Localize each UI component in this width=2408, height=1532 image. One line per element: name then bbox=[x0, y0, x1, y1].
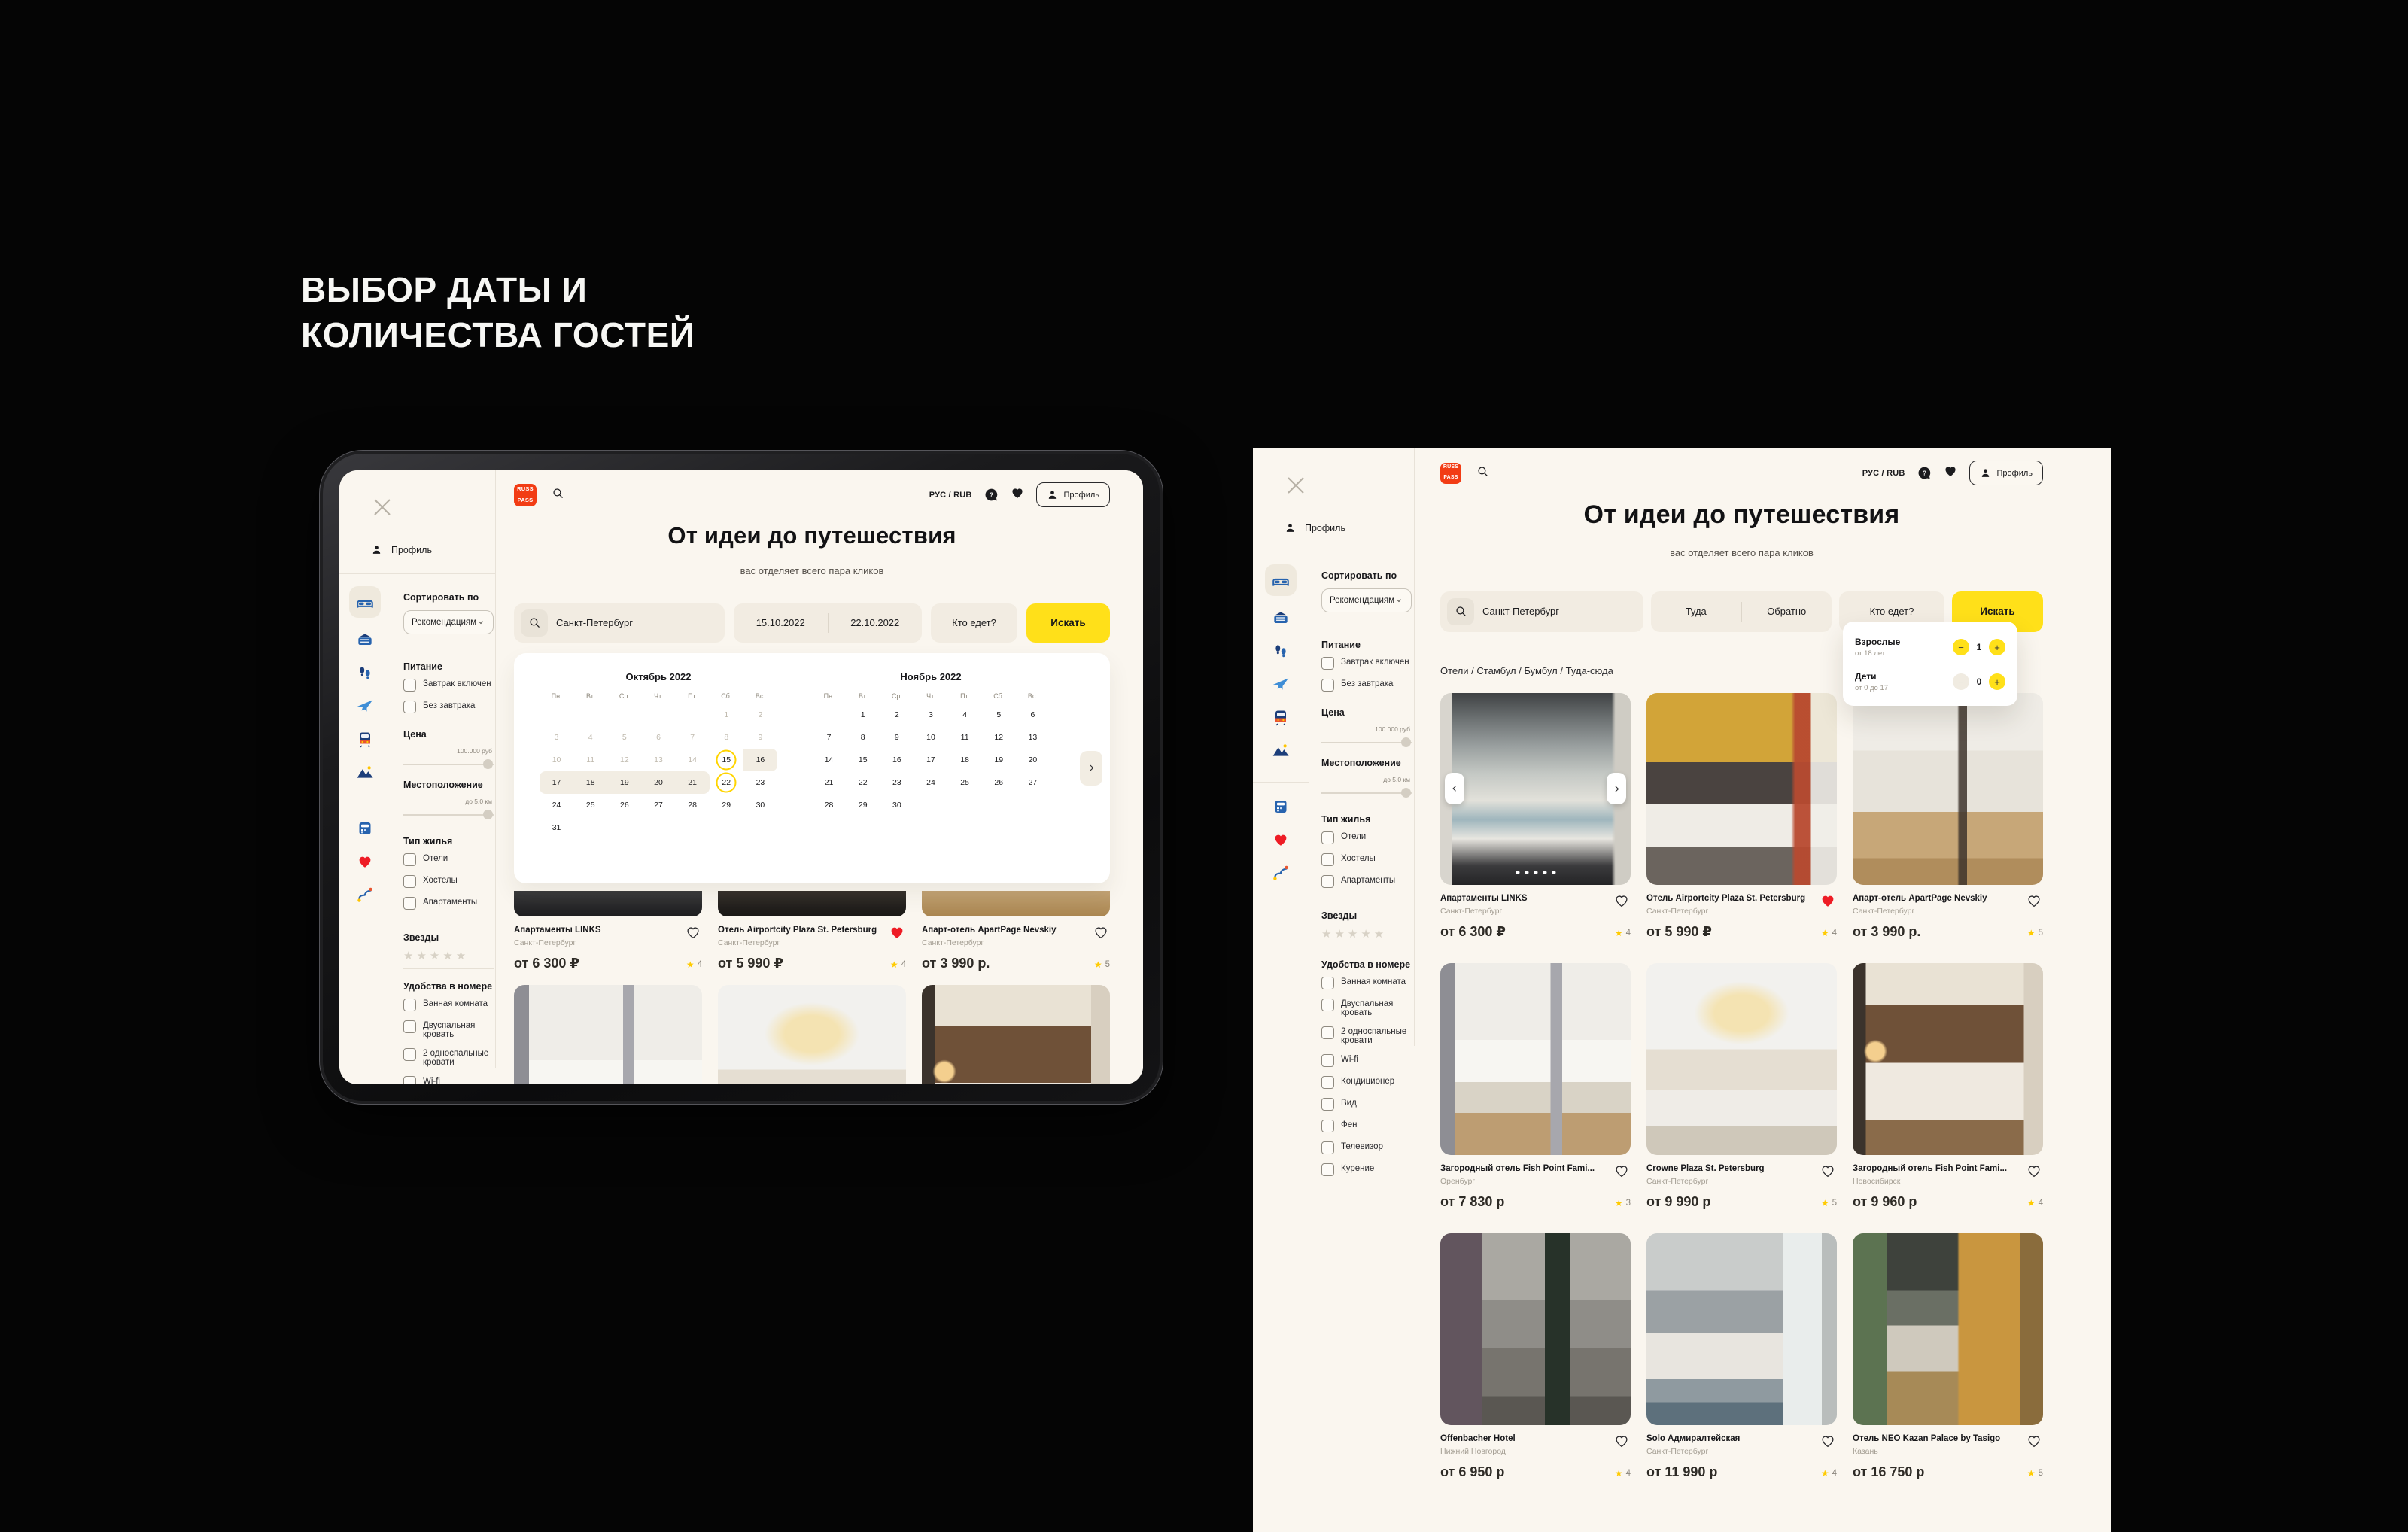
calendar-day[interactable]: 3 bbox=[540, 726, 573, 749]
hotel-price-row: от 6 300 ₽★4 bbox=[514, 956, 702, 971]
guest-type-sublabel: от 18 лет bbox=[1855, 649, 1900, 658]
calendar-day[interactable]: 13 bbox=[1016, 726, 1050, 749]
calendar-day[interactable]: 24 bbox=[914, 771, 947, 794]
filter-type-option[interactable]: Апартаменты bbox=[403, 898, 494, 910]
wishlist-button[interactable] bbox=[1820, 1164, 1835, 1181]
rail-item-train[interactable] bbox=[356, 728, 374, 749]
carousel-dot[interactable] bbox=[1534, 871, 1537, 874]
person-icon bbox=[371, 544, 382, 555]
filter-amenity-option[interactable]: Вид bbox=[1321, 1099, 1412, 1111]
hotel-rating-value: 4 bbox=[1832, 929, 1837, 938]
hotel-photo[interactable] bbox=[1646, 1233, 1837, 1425]
wishlist-button[interactable] bbox=[1093, 926, 1108, 943]
close-icon bbox=[371, 496, 394, 518]
carousel-dot[interactable] bbox=[1516, 871, 1519, 874]
slider-knob[interactable] bbox=[1401, 737, 1411, 747]
hotel-price-row: от 16 750 р★5 bbox=[1853, 1464, 2043, 1480]
hotel-price: от 16 750 р bbox=[1853, 1464, 1924, 1480]
divider bbox=[403, 920, 494, 920]
hotel-card[interactable]: Offenbacher HotelНижний Новгородот 6 950… bbox=[1440, 1233, 1631, 1480]
hotel-photo[interactable] bbox=[1646, 693, 1837, 885]
weekday-label: Сб. bbox=[710, 692, 743, 700]
calendar-day[interactable]: 4 bbox=[573, 726, 607, 749]
filter-amenity-option-label: 2 односпальные кровати bbox=[1341, 1027, 1412, 1045]
minus-button[interactable]: − bbox=[1953, 673, 1969, 690]
checkbox bbox=[1321, 1026, 1334, 1039]
filter-amenity-option-label: Кондиционер bbox=[1341, 1077, 1394, 1086]
calendar-day[interactable]: 14 bbox=[812, 749, 846, 771]
hotel-name: Загородный отель Fish Point Fami... bbox=[1440, 1164, 1608, 1173]
filter-amenity-option-label: Фен bbox=[1341, 1120, 1358, 1129]
footsteps-icon bbox=[356, 664, 374, 682]
calendar-day[interactable]: 21 bbox=[812, 771, 846, 794]
carousel-prev-button[interactable] bbox=[1445, 773, 1464, 804]
star-icon: ★ bbox=[1615, 928, 1623, 938]
star-icon: ★ bbox=[1615, 1468, 1623, 1479]
hotel-photo[interactable] bbox=[1440, 963, 1631, 1155]
filter-food-label: Питание bbox=[1321, 640, 1412, 650]
plane-icon bbox=[355, 696, 375, 716]
direction-back[interactable]: Обратно bbox=[1742, 606, 1832, 617]
calendar-day[interactable]: 29 bbox=[710, 794, 743, 816]
minus-button[interactable]: − bbox=[1953, 639, 1969, 655]
calendar-day[interactable]: 25 bbox=[573, 794, 607, 816]
hotel-card-caption: Апартаменты LINKSСанкт-Петербургот 6 300… bbox=[1440, 885, 1631, 940]
star-icon: ★ bbox=[1821, 1468, 1829, 1479]
calendar-day[interactable]: 11 bbox=[948, 726, 982, 749]
filter-amenity-option-label: Wi-fi bbox=[1341, 1055, 1358, 1064]
calendar-day[interactable]: 23 bbox=[880, 771, 914, 794]
rail-item-route[interactable] bbox=[1271, 862, 1291, 883]
hotel-photo[interactable] bbox=[1440, 1233, 1631, 1425]
filter-amenity-option[interactable]: Двуспальная кровать bbox=[403, 1021, 494, 1039]
calendar-day[interactable]: 20 bbox=[1016, 749, 1050, 771]
rail-item-mountains[interactable] bbox=[1271, 740, 1291, 761]
filter-type-option-label: Хостелы bbox=[1341, 854, 1376, 863]
carousel-dot[interactable] bbox=[1543, 871, 1546, 874]
calendar-day[interactable]: 14 bbox=[676, 749, 710, 771]
calendar-next-month-button[interactable] bbox=[1080, 751, 1102, 786]
search-icon bbox=[1476, 465, 1489, 478]
hotel-card[interactable]: Отель Airportcity Plaza St. PetersburgСа… bbox=[1646, 693, 1837, 940]
hotel-card[interactable]: Апартаменты LINKSСанкт-Петербургот 6 300… bbox=[1440, 693, 1631, 940]
hotel-card[interactable]: Отель NEO Kazan Palace by TasigoКазаньот… bbox=[1853, 1233, 2043, 1480]
filter-amenity-option[interactable]: 2 односпальные кровати bbox=[403, 1049, 494, 1067]
plane-icon bbox=[1271, 674, 1291, 694]
checkbox bbox=[1321, 831, 1334, 844]
filter-amenity-option-label: Телевизор bbox=[1341, 1142, 1383, 1151]
calendar-day[interactable]: 25 bbox=[948, 771, 982, 794]
hotel-rating: ★5 bbox=[1094, 959, 1110, 970]
profile-button[interactable]: Профиль bbox=[1969, 461, 2044, 485]
hotel-card-caption: Апартаменты LINKSСанкт-Петербургот 6 300… bbox=[514, 916, 702, 971]
hotel-city: Санкт-Петербург bbox=[1646, 1177, 1837, 1186]
calendar-day[interactable]: 10 bbox=[914, 726, 947, 749]
heart-outline-icon bbox=[1820, 1164, 1835, 1178]
rail-item-heart[interactable] bbox=[1273, 829, 1288, 850]
hotel-price-row: от 6 300 ₽★4 bbox=[1440, 924, 1631, 940]
guests-field[interactable]: Кто едет? bbox=[931, 603, 1017, 643]
hotel-photo[interactable] bbox=[1853, 693, 2043, 885]
price-slider[interactable] bbox=[1321, 737, 1412, 747]
hotel-rating-value: 4 bbox=[2039, 1199, 2043, 1208]
rail-item-tickets[interactable] bbox=[1271, 607, 1291, 628]
calendar-day[interactable]: 16 bbox=[880, 749, 914, 771]
calendar-day[interactable]: 22 bbox=[846, 771, 880, 794]
slider-track bbox=[403, 814, 494, 816]
hotel-photo[interactable] bbox=[1853, 1233, 2043, 1425]
calendar-day[interactable]: 5 bbox=[607, 726, 641, 749]
calendar-weekdays: Пн.Вт.Ср.Чт.Пт.Сб.Вс. bbox=[812, 692, 1050, 700]
booking-app-tablet: ПрофильСортировать поРекомендациямПитани… bbox=[339, 470, 1143, 1084]
star-icon: ★ bbox=[2027, 1198, 2036, 1208]
wishlist-button[interactable] bbox=[1820, 1434, 1835, 1451]
card-icon bbox=[1272, 798, 1290, 816]
carousel-dot[interactable] bbox=[1552, 871, 1555, 874]
app-bar: RUSSPASSРУС / RUB?Профиль bbox=[1440, 448, 2043, 485]
sort-label: Сортировать по bbox=[403, 592, 494, 603]
wishlist-button[interactable] bbox=[889, 926, 905, 943]
calendar-day-selected[interactable]: 15 bbox=[710, 749, 743, 771]
city-field[interactable]: Санкт-Петербург bbox=[514, 603, 725, 643]
app-bar-right: РУС / RUB?Профиль bbox=[1862, 461, 2043, 485]
slider-knob[interactable] bbox=[1401, 788, 1411, 798]
search-icon bbox=[1455, 605, 1467, 618]
plus-button[interactable]: + bbox=[1989, 673, 2005, 690]
calendar-day[interactable]: 27 bbox=[1016, 771, 1050, 794]
rail-item-mountains[interactable] bbox=[355, 761, 375, 783]
filter-amenity-option[interactable]: 2 односпальные кровати bbox=[1321, 1027, 1412, 1045]
calendar-weekdays: Пн.Вт.Ср.Чт.Пт.Сб.Вс. bbox=[540, 692, 777, 700]
filter-amenity-option[interactable]: Фен bbox=[1321, 1120, 1412, 1132]
filter-food-option[interactable]: Завтрак включен bbox=[403, 679, 494, 692]
rail-section-divider bbox=[1253, 782, 1309, 783]
icon-rail bbox=[1253, 552, 1309, 1186]
hotel-photo[interactable] bbox=[1853, 963, 2043, 1155]
search-submit-label: Искать bbox=[1980, 606, 2014, 617]
checkbox bbox=[1321, 1054, 1334, 1067]
calendar-day[interactable]: 1 bbox=[710, 704, 743, 726]
dates-field[interactable]: ТудаОбратно bbox=[1651, 591, 1832, 632]
filter-amenity-label: Удобства в номере bbox=[1321, 959, 1412, 970]
slider-knob[interactable] bbox=[483, 759, 493, 769]
filter-amenity-option[interactable]: Ванная комната bbox=[403, 999, 494, 1011]
calendar-day-in-range[interactable]: 17 bbox=[540, 771, 573, 794]
rail-item-plane[interactable] bbox=[1271, 673, 1291, 695]
hotel-price-row: от 5 990 ₽★4 bbox=[1646, 924, 1837, 940]
wishlist-button[interactable] bbox=[2026, 1164, 2042, 1181]
calendar-day[interactable]: 31 bbox=[540, 816, 573, 839]
stars-label: Звезды bbox=[403, 932, 494, 943]
russpass-logo[interactable]: RUSSPASS bbox=[514, 484, 537, 506]
calendar-day[interactable]: 28 bbox=[676, 794, 710, 816]
calendar-day[interactable]: 2 bbox=[880, 704, 914, 726]
filter-type-option[interactable]: Отели bbox=[1321, 832, 1412, 844]
calendar-day[interactable]: 4 bbox=[948, 704, 982, 726]
sidebar-profile[interactable]: Профиль bbox=[1285, 522, 1415, 533]
svg-text:?: ? bbox=[989, 491, 993, 499]
filter-food-option[interactable]: Без завтрака bbox=[1321, 679, 1412, 692]
hotel-card[interactable]: Crowne Plaza St. PetersburgСанкт-Петербу… bbox=[1646, 963, 1837, 1210]
wishlist-button[interactable] bbox=[1614, 1434, 1629, 1451]
hotel-card-caption: Отель Airportcity Plaza St. PetersburgСа… bbox=[718, 916, 906, 971]
footsteps-icon bbox=[1272, 642, 1290, 660]
russpass-logo[interactable]: RUSSPASS bbox=[1440, 463, 1461, 484]
dates-field[interactable]: 15.10.202222.10.2022 bbox=[734, 603, 922, 643]
hotel-city: Санкт-Петербург bbox=[1646, 907, 1837, 916]
city-field[interactable]: Санкт-Петербург bbox=[1440, 591, 1643, 632]
rail-item-footsteps[interactable] bbox=[1272, 640, 1290, 661]
filter-type-option-label: Хостелы bbox=[423, 876, 458, 885]
calendar-day[interactable]: 23 bbox=[743, 771, 777, 794]
calendar-day[interactable]: 8 bbox=[710, 726, 743, 749]
hotel-price-row: от 6 950 р★4 bbox=[1440, 1464, 1631, 1480]
filter-type-option[interactable]: Хостелы bbox=[1321, 854, 1412, 866]
hotel-photo[interactable] bbox=[514, 985, 702, 1084]
wishlist-button[interactable] bbox=[1820, 894, 1835, 911]
hotel-city: Казань bbox=[1853, 1447, 2043, 1456]
filter-type-option-label: Апартаменты bbox=[1341, 876, 1395, 885]
calendar-day[interactable]: 2 bbox=[743, 704, 777, 726]
calendar-day-in-range[interactable]: 16 bbox=[743, 749, 777, 771]
calendar-day[interactable]: 7 bbox=[676, 726, 710, 749]
hotel-rating: ★4 bbox=[1615, 1468, 1631, 1479]
hotel-rating-value: 4 bbox=[901, 960, 906, 969]
price-slider[interactable] bbox=[403, 759, 494, 769]
hotel-card-caption: Offenbacher HotelНижний Новгородот 6 950… bbox=[1440, 1425, 1631, 1480]
calendar-day[interactable]: 19 bbox=[982, 749, 1016, 771]
support-chat-button[interactable]: ? bbox=[1917, 466, 1932, 480]
hotel-photo[interactable] bbox=[922, 985, 1110, 1084]
filter-food-option-label: Завтрак включен bbox=[423, 679, 491, 688]
plus-button[interactable]: + bbox=[1989, 639, 2005, 655]
calendar-day-selected[interactable]: 22 bbox=[710, 771, 743, 794]
location-slider[interactable] bbox=[1321, 788, 1412, 798]
rail-item-route[interactable] bbox=[355, 884, 375, 905]
hotel-name: Solo Адмиралтейская bbox=[1646, 1434, 1814, 1443]
search-button[interactable] bbox=[552, 487, 564, 503]
calendar-day[interactable]: 26 bbox=[607, 794, 641, 816]
heart-filled-icon bbox=[889, 926, 905, 939]
calendar-day[interactable]: 12 bbox=[607, 749, 641, 771]
calendar-day[interactable]: 3 bbox=[914, 704, 947, 726]
calendar-day[interactable]: 18 bbox=[948, 749, 982, 771]
calendar-day[interactable]: 1 bbox=[846, 704, 880, 726]
profile-button[interactable]: Профиль bbox=[1036, 482, 1111, 507]
filter-type-option-label: Отели bbox=[1341, 832, 1366, 841]
sidebar-profile[interactable]: Профиль bbox=[371, 544, 496, 555]
hotel-card[interactable]: Загородный отель Fish Point Fami...Новос… bbox=[1853, 963, 2043, 1210]
calendar-day[interactable]: 30 bbox=[743, 794, 777, 816]
calendar-day[interactable]: 10 bbox=[540, 749, 573, 771]
sidebar-columns: Сортировать поРекомендациямПитаниеЗавтра… bbox=[339, 574, 496, 1084]
rail-item-card[interactable] bbox=[1272, 796, 1290, 817]
rail-item-bed-active[interactable] bbox=[1265, 564, 1297, 596]
calendar-month-title: Октябрь 2022 bbox=[540, 671, 777, 682]
search-submit-button[interactable]: Искать bbox=[1026, 603, 1110, 643]
calendar-day-in-range[interactable]: 18 bbox=[573, 771, 607, 794]
locale-switcher[interactable]: РУС / RUB bbox=[929, 491, 972, 500]
slider-knob[interactable] bbox=[483, 810, 493, 819]
hotel-card-caption: Отель Airportcity Plaza St. PetersburgСа… bbox=[1646, 885, 1837, 940]
hotel-rating: ★4 bbox=[1821, 928, 1837, 938]
location-slider[interactable] bbox=[403, 810, 494, 819]
calendar-day[interactable]: 30 bbox=[880, 794, 914, 816]
filter-amenity-option[interactable]: Телевизор bbox=[1321, 1142, 1412, 1154]
rail-item-tickets[interactable] bbox=[355, 629, 375, 650]
rail-item-footsteps[interactable] bbox=[356, 662, 374, 683]
sort-select[interactable]: Рекомендациям bbox=[1321, 588, 1412, 612]
date-to[interactable]: 22.10.2022 bbox=[829, 617, 923, 628]
favorites-button[interactable] bbox=[1944, 465, 1957, 481]
calendar-day[interactable]: 9 bbox=[880, 726, 914, 749]
calendar-day[interactable]: 26 bbox=[982, 771, 1016, 794]
filter-food-option[interactable]: Без завтрака bbox=[403, 701, 494, 713]
rail-item-bed-active[interactable] bbox=[349, 586, 381, 618]
calendar-day-in-range[interactable]: 21 bbox=[676, 771, 710, 794]
checkbox bbox=[1321, 1163, 1334, 1176]
filter-amenity-option[interactable]: Двуспальная кровать bbox=[1321, 999, 1412, 1017]
heart-icon bbox=[357, 855, 372, 868]
checkbox bbox=[1321, 679, 1334, 692]
calendar-day[interactable]: 27 bbox=[641, 794, 675, 816]
filter-amenity-option[interactable]: Wi-fi bbox=[403, 1077, 494, 1084]
calendar-day[interactable]: 5 bbox=[982, 704, 1016, 726]
chevron-down-icon bbox=[476, 618, 485, 627]
heart-icon bbox=[1011, 487, 1024, 499]
calendar-day[interactable]: 11 bbox=[573, 749, 607, 771]
filter-type-option[interactable]: Апартаменты bbox=[1321, 876, 1412, 888]
filter-type-option-label: Апартаменты bbox=[423, 898, 477, 907]
chevron-left-icon bbox=[1450, 784, 1459, 793]
calendar-day[interactable]: 6 bbox=[1016, 704, 1050, 726]
hotel-photo[interactable] bbox=[1440, 693, 1631, 885]
wishlist-button[interactable] bbox=[1614, 1164, 1629, 1181]
search-icon bbox=[528, 616, 541, 629]
wishlist-button[interactable] bbox=[2026, 894, 2042, 911]
calendar-day[interactable]: 12 bbox=[982, 726, 1016, 749]
card-icon bbox=[356, 819, 374, 837]
stars-filter[interactable]: ★★★★★ bbox=[1321, 927, 1412, 941]
filter-amenity-label: Удобства в номере bbox=[403, 981, 494, 992]
heart-filled-icon bbox=[1820, 894, 1835, 907]
hotel-captions-row: Апартаменты LINKSСанкт-Петербургот 6 300… bbox=[514, 916, 1110, 971]
favorites-button[interactable] bbox=[1011, 487, 1024, 503]
hotel-price-row: от 5 990 ₽★4 bbox=[718, 956, 906, 971]
hotel-photo[interactable] bbox=[1646, 963, 1837, 1155]
search-icon bbox=[552, 487, 564, 500]
sort-select[interactable]: Рекомендациям bbox=[403, 610, 494, 634]
wishlist-button[interactable] bbox=[1614, 894, 1629, 911]
date-from[interactable]: 15.10.2022 bbox=[734, 617, 828, 628]
hotel-rating: ★3 bbox=[1615, 1198, 1631, 1208]
carousel-next-button[interactable] bbox=[1607, 773, 1626, 804]
close-button[interactable] bbox=[371, 496, 397, 521]
search-button[interactable] bbox=[1476, 465, 1489, 482]
filter-amenity-option[interactable]: Кондиционер bbox=[1321, 1077, 1412, 1089]
hero-title: От идеи до путешествия bbox=[1440, 500, 2043, 530]
hotel-rating: ★4 bbox=[1615, 928, 1631, 938]
hotel-price: от 3 990 р. bbox=[1853, 924, 1920, 940]
hotel-price-row: от 7 830 р★3 bbox=[1440, 1194, 1631, 1210]
checkbox bbox=[1321, 1098, 1334, 1111]
calendar-day[interactable]: 13 bbox=[641, 749, 675, 771]
calendar-day[interactable]: 8 bbox=[846, 726, 880, 749]
support-chat-button[interactable]: ? bbox=[984, 488, 999, 502]
close-button[interactable] bbox=[1285, 474, 1310, 500]
slider-track bbox=[1321, 792, 1412, 794]
calendar-day[interactable]: 29 bbox=[846, 794, 880, 816]
hotel-photo[interactable] bbox=[718, 985, 906, 1084]
hotel-price: от 6 300 ₽ bbox=[514, 956, 579, 971]
tablet-screen: ПрофильСортировать поРекомендациямПитани… bbox=[339, 470, 1143, 1084]
logo-line1: RUSS bbox=[517, 486, 534, 493]
guest-stepper: −0+ bbox=[1953, 673, 2005, 690]
hotel-price: от 11 990 р bbox=[1646, 1464, 1717, 1480]
stars-filter[interactable]: ★★★★★ bbox=[403, 949, 494, 962]
direction-to[interactable]: Туда bbox=[1651, 606, 1741, 617]
filter-amenity-option[interactable]: Wi-fi bbox=[1321, 1055, 1412, 1067]
filter-food-option-label: Без завтрака bbox=[423, 701, 475, 710]
filter-type-option[interactable]: Отели bbox=[403, 854, 494, 866]
divider bbox=[1321, 947, 1412, 947]
filter-amenity-option[interactable]: Ванная комната bbox=[1321, 977, 1412, 989]
search-row: Санкт-Петербург15.10.202222.10.2022Кто е… bbox=[514, 603, 1110, 643]
filter-type-option[interactable]: Хостелы bbox=[403, 876, 494, 888]
person-icon bbox=[1047, 489, 1058, 500]
calendar-days: 1234567891011121314151617181920212223242… bbox=[812, 704, 1050, 816]
person-icon bbox=[1285, 522, 1296, 533]
heart-outline-icon bbox=[2026, 1164, 2042, 1178]
filter-amenity-option[interactable]: Курение bbox=[1321, 1164, 1412, 1176]
calendar-day[interactable]: 17 bbox=[914, 749, 947, 771]
rail-item-train[interactable] bbox=[1272, 707, 1290, 728]
page-title: ВЫБОР ДАТЫ И КОЛИЧЕСТВА ГОСТЕЙ bbox=[301, 268, 695, 358]
calendar-day[interactable]: 28 bbox=[812, 794, 846, 816]
hotel-card-caption: Апарт-отель ApartPage NevskiyСанкт-Петер… bbox=[1853, 885, 2043, 940]
logo-line2: PASS bbox=[518, 497, 534, 504]
calendar-day[interactable]: 15 bbox=[846, 749, 880, 771]
hotel-photo-bottom[interactable] bbox=[718, 891, 906, 916]
filter-food-option[interactable]: Завтрак включен bbox=[1321, 658, 1412, 670]
hotel-photo-bottom[interactable] bbox=[922, 891, 1110, 916]
calendar-day-in-range[interactable]: 20 bbox=[641, 771, 675, 794]
hotel-photo-bottom[interactable] bbox=[514, 891, 702, 916]
city-value: Санкт-Петербург bbox=[1482, 606, 1559, 617]
wishlist-button[interactable] bbox=[686, 926, 701, 943]
booking-app-desktop: ПрофильСортировать поРекомендациямПитани… bbox=[1253, 448, 2111, 1532]
calendar-day[interactable]: 9 bbox=[743, 726, 777, 749]
star-icon: ★ bbox=[890, 959, 898, 970]
rail-item-card[interactable] bbox=[356, 818, 374, 839]
wishlist-button[interactable] bbox=[2026, 1434, 2042, 1451]
calendar-day[interactable]: 7 bbox=[812, 726, 846, 749]
hotel-card-caption: Загородный отель Fish Point Fami...Новос… bbox=[1853, 1155, 2043, 1210]
calendar-day[interactable]: 6 bbox=[641, 726, 675, 749]
city-search-chip bbox=[1447, 598, 1474, 625]
rail-item-plane[interactable] bbox=[355, 695, 375, 716]
hotel-card[interactable]: Solo АдмиралтейскаяСанкт-Петербургот 11 … bbox=[1646, 1233, 1837, 1480]
price-max-label: 100.000 руб bbox=[1321, 725, 1410, 733]
filters-sidebar: ПрофильСортировать поРекомендациямПитани… bbox=[339, 470, 496, 1084]
carousel-dot[interactable] bbox=[1525, 871, 1528, 874]
calendar-day[interactable]: 24 bbox=[540, 794, 573, 816]
hotel-card[interactable]: Апарт-отель ApartPage NevskiyСанкт-Петер… bbox=[1853, 693, 2043, 940]
hotel-card[interactable]: Загородный отель Fish Point Fami...Оренб… bbox=[1440, 963, 1631, 1210]
rail-item-heart[interactable] bbox=[357, 851, 372, 872]
locale-switcher[interactable]: РУС / RUB bbox=[1862, 469, 1905, 478]
calendar-day-in-range[interactable]: 19 bbox=[607, 771, 641, 794]
